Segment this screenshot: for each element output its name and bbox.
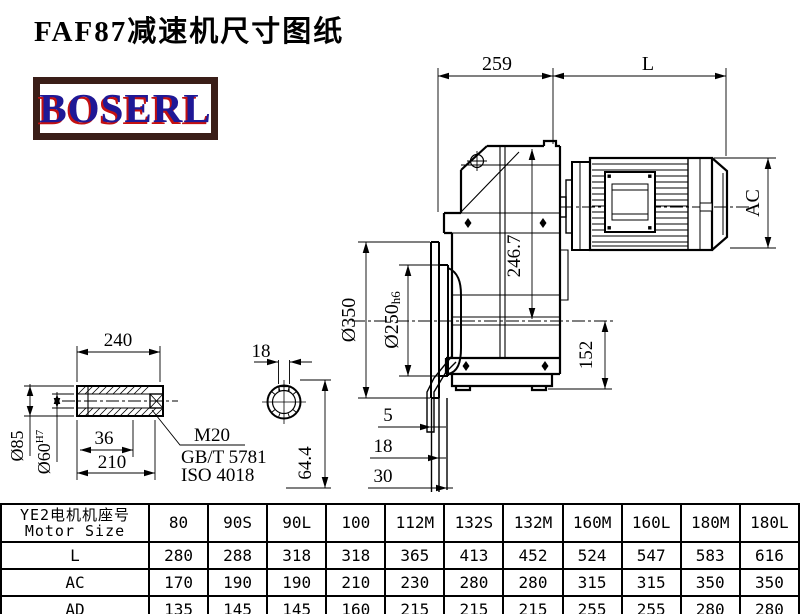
dimension-drawing-page: FAF87减速机尺寸图纸 BOSERL bbox=[0, 0, 800, 614]
keyway-width-label: 18 bbox=[252, 341, 271, 362]
table-header-row: YE2电机机座号Motor Size8090S90L100112M132S132… bbox=[1, 504, 799, 542]
table-column-header: 80 bbox=[149, 504, 208, 542]
table-cell: 215 bbox=[385, 596, 444, 614]
dimension-arrowheads bbox=[27, 73, 772, 492]
table-cell: 315 bbox=[563, 569, 622, 596]
terminal-box bbox=[605, 172, 655, 232]
motor-size-table: YE2电机机座号Motor Size8090S90L100112M132S132… bbox=[0, 503, 800, 614]
table-cell: 350 bbox=[740, 569, 799, 596]
motor-size-header-en: Motor Size bbox=[2, 523, 148, 540]
table-cell: 280 bbox=[444, 569, 503, 596]
table-cell: 145 bbox=[208, 596, 267, 614]
table-row: L280288318318365413452524547583616 bbox=[1, 542, 799, 569]
table-column-header: 160M bbox=[563, 504, 622, 542]
dim-L-label: L bbox=[642, 53, 654, 75]
table-cell: 350 bbox=[681, 569, 740, 596]
table-cell: 452 bbox=[503, 542, 562, 569]
fan-cowl bbox=[712, 158, 727, 250]
table-row: AC170190190210230280280315315350350 bbox=[1, 569, 799, 596]
dim-2467-label: 246.7 bbox=[504, 235, 525, 278]
table-cell: 215 bbox=[444, 596, 503, 614]
table-cell: 280 bbox=[681, 596, 740, 614]
dim-350-label: Ø350 bbox=[338, 298, 360, 342]
table-column-header: 160L bbox=[622, 504, 681, 542]
table-column-header: 132M bbox=[503, 504, 562, 542]
dimension-labels: 259 L AC 246.7 152 Ø350 Ø250h6 5 18 30 2… bbox=[7, 53, 764, 487]
dim-152-label: 152 bbox=[576, 341, 597, 370]
motor-adapter bbox=[572, 162, 590, 250]
table-row-label: AD bbox=[1, 596, 149, 614]
motor bbox=[560, 158, 727, 250]
table-column-header: 132S bbox=[444, 504, 503, 542]
motor-size-header-cn: YE2电机机座号 bbox=[2, 507, 148, 524]
dim-30-label: 30 bbox=[374, 466, 393, 487]
table-cell: 190 bbox=[267, 569, 326, 596]
table-cell: 255 bbox=[622, 596, 681, 614]
standard-iso-label: ISO 4018 bbox=[181, 465, 254, 486]
table-cell: 547 bbox=[622, 542, 681, 569]
table-cell: 318 bbox=[267, 542, 326, 569]
motor-size-table-body: YE2电机机座号Motor Size8090S90L100112M132S132… bbox=[1, 504, 799, 614]
dim-AC-label: AC bbox=[742, 189, 764, 217]
table-cell: 365 bbox=[385, 542, 444, 569]
table-cell: 210 bbox=[326, 569, 385, 596]
fan-hub bbox=[700, 203, 712, 211]
table-cell: 170 bbox=[149, 569, 208, 596]
dim-18-label: 18 bbox=[374, 436, 393, 457]
table-cell: 190 bbox=[208, 569, 267, 596]
table-row-label: AC bbox=[1, 569, 149, 596]
table-cell: 160 bbox=[326, 596, 385, 614]
dim-36-label: 36 bbox=[95, 428, 114, 449]
extension-lines bbox=[24, 68, 776, 488]
output-flange bbox=[425, 242, 461, 492]
table-column-header: 112M bbox=[385, 504, 444, 542]
table-cell: 288 bbox=[208, 542, 267, 569]
table-cell: 616 bbox=[740, 542, 799, 569]
table-column-header: 180M bbox=[681, 504, 740, 542]
technical-drawing: 259 L AC 246.7 152 Ø350 Ø250h6 5 18 30 2… bbox=[0, 0, 800, 505]
thread-callout-label: M20 bbox=[194, 425, 230, 446]
table-corner-cell: YE2电机机座号Motor Size bbox=[1, 504, 149, 542]
table-cell: 583 bbox=[681, 542, 740, 569]
table-column-header: 180L bbox=[740, 504, 799, 542]
dim-85-label: Ø85 bbox=[7, 431, 27, 462]
dim-60H7-label: Ø60H7 bbox=[34, 429, 54, 474]
table-cell: 524 bbox=[563, 542, 622, 569]
dim-210-label: 210 bbox=[98, 452, 127, 473]
dim-240-label: 240 bbox=[104, 330, 133, 351]
table-cell: 230 bbox=[385, 569, 444, 596]
table-cell: 280 bbox=[149, 542, 208, 569]
table-column-header: 90S bbox=[208, 504, 267, 542]
dimension-lines bbox=[30, 76, 768, 488]
table-row-label: L bbox=[1, 542, 149, 569]
dim-259-label: 259 bbox=[482, 53, 512, 75]
table-cell: 215 bbox=[503, 596, 562, 614]
table-cell: 315 bbox=[622, 569, 681, 596]
table-cell: 255 bbox=[563, 596, 622, 614]
table-cell: 280 bbox=[503, 569, 562, 596]
table-column-header: 100 bbox=[326, 504, 385, 542]
keyway-height-label: 64.4 bbox=[295, 446, 316, 480]
table-column-header: 90L bbox=[267, 504, 326, 542]
table-cell: 145 bbox=[267, 596, 326, 614]
shaft-cross-section bbox=[262, 380, 306, 424]
table-row: AD135145145160215215215255255280280 bbox=[1, 596, 799, 614]
table-cell: 413 bbox=[444, 542, 503, 569]
dim-250h6-label: Ø250h6 bbox=[381, 291, 403, 349]
table-cell: 318 bbox=[326, 542, 385, 569]
table-cell: 135 bbox=[149, 596, 208, 614]
dim-5-label: 5 bbox=[383, 405, 393, 426]
table-cell: 280 bbox=[740, 596, 799, 614]
